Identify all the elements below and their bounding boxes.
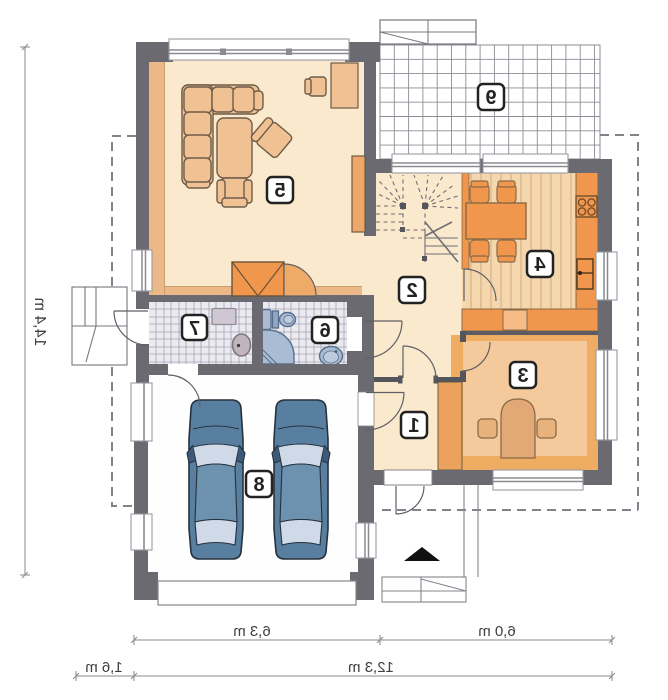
- svg-text:6: 6: [319, 320, 330, 342]
- svg-text:7: 7: [189, 318, 200, 340]
- svg-text:2: 2: [406, 280, 417, 302]
- svg-text:5: 5: [274, 180, 285, 202]
- svg-text:1,6 m: 1,6 m: [85, 659, 123, 676]
- svg-text:6,3 m: 6,3 m: [233, 623, 271, 640]
- svg-text:9: 9: [485, 87, 496, 109]
- svg-text:14,4 m: 14,4 m: [31, 298, 48, 347]
- svg-text:3: 3: [517, 365, 528, 387]
- svg-text:1: 1: [408, 415, 419, 437]
- svg-text:8: 8: [253, 474, 264, 496]
- svg-text:12,3 m: 12,3 m: [348, 659, 394, 676]
- svg-text:4: 4: [534, 254, 546, 276]
- svg-text:6,0 m: 6,0 m: [478, 623, 516, 640]
